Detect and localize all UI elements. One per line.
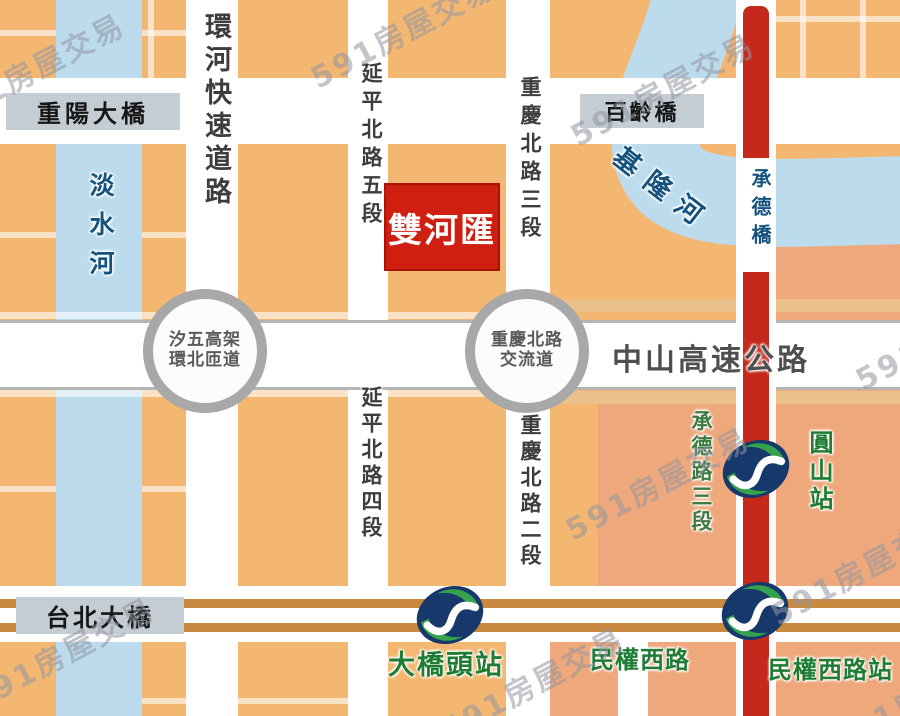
yanping-n-rd-sec4-label: 延平北路四段 (356, 386, 386, 542)
station-yuanshan-label: 圓山站 (802, 430, 837, 514)
interchange-label-line1: 汐五高架 (169, 331, 241, 351)
bailing-bridge-band: 百齡橋 (580, 94, 704, 128)
interchange-label-line2: 環北匝道 (169, 351, 241, 371)
interchange-circle-chongqing: 重慶北路 交流道 (465, 289, 589, 413)
station-minquan-w-label: 民權西路站 (768, 650, 893, 685)
interchange-label-line1: 重慶北路 (491, 331, 563, 351)
minquan-w-rd-label: 民權西路 (590, 640, 690, 675)
chengde-bridge-label: 承德橋 (746, 168, 775, 252)
chongqing-n-rd-sec3-label: 重慶北路三段 (515, 76, 545, 244)
chengde-road-north (743, 6, 769, 158)
metro-logo-icon (412, 577, 488, 653)
bailing-bridge-label: 百齡橋 (604, 95, 679, 127)
chongyang-bridge-label: 重陽大橋 (37, 94, 149, 129)
interchange-label-line2: 交流道 (500, 351, 554, 371)
chongyang-bridge-band: 重陽大橋 (6, 93, 180, 130)
yanping-n-rd-sec5-label: 延平北路五段 (356, 62, 386, 230)
taipei-bridge-label: 台北大橋 (46, 598, 154, 633)
frontage-road (0, 390, 560, 397)
huanhe-expressway-label: 環河快速道路 (196, 12, 235, 210)
zhongshan-highway-label: 中山高速公路 (612, 335, 810, 379)
chongqing-n-rd-sec2-label: 重慶北路二段 (515, 414, 545, 570)
metro-logo-icon (718, 431, 794, 507)
tamsui-river-label: 淡水河 (82, 172, 118, 289)
metro-logo-icon (717, 573, 793, 649)
frontage-road (560, 391, 900, 404)
chengde-rd-sec3-label: 承德路三段 (686, 410, 716, 535)
interchange-circle-huanbei: 汐五高架 環北匝道 (143, 289, 267, 413)
taipei-bridge-band: 台北大橋 (16, 597, 184, 634)
project-marker: 雙河匯 (384, 183, 500, 271)
station-daqiaotou-label: 大橋頭站 (388, 643, 504, 682)
project-label: 雙河匯 (388, 203, 496, 252)
frontage-road (560, 299, 900, 312)
map-canvas[interactable]: 重陽大橋 百齡橋 台北大橋 汐五高架 環北匝道 重慶北路 交流道 雙河匯 環河快… (0, 0, 900, 716)
